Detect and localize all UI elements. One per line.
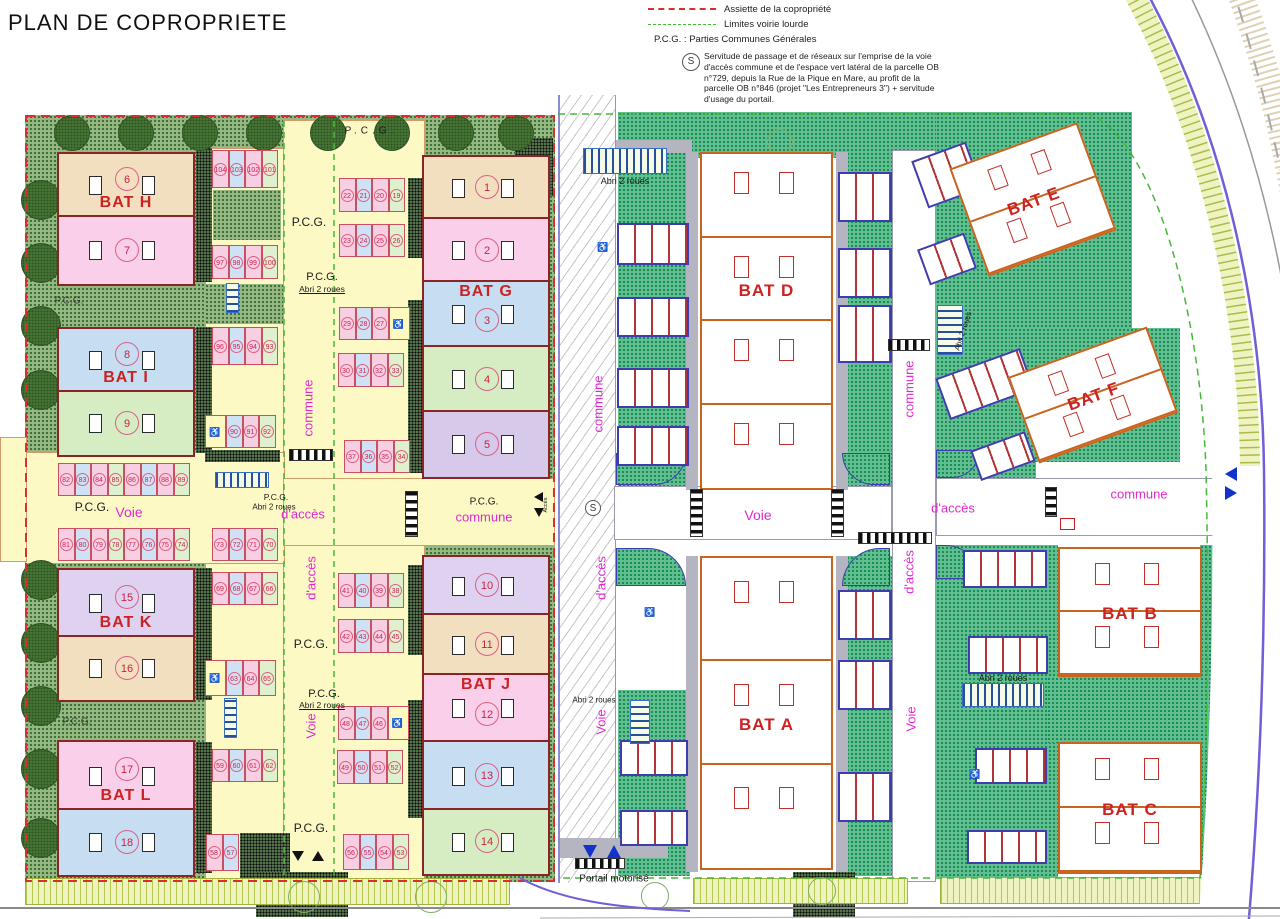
window-icon (89, 833, 102, 852)
stall-number: 84 (93, 473, 106, 486)
road-label: commune (301, 379, 316, 436)
window-icon (734, 581, 749, 603)
parking-stall-53: 53 (393, 834, 410, 870)
parking-stall-44: 44 (371, 619, 388, 653)
window-icon (1030, 149, 1052, 175)
parking-stall-31: 31 (355, 353, 372, 387)
bike-shelter (224, 698, 237, 738)
window-icon (779, 256, 794, 278)
crosswalk (858, 532, 932, 544)
window-icon (779, 172, 794, 194)
parking-stalls (838, 660, 892, 710)
stall-number: 41 (340, 584, 353, 597)
window-icon (734, 684, 749, 706)
tree-icon (21, 370, 61, 410)
parking-cluster: ♿909192 (205, 415, 276, 448)
road-label: Voie (304, 713, 319, 738)
crosswalk (690, 489, 703, 537)
parking-cluster: 41403938 (338, 573, 404, 608)
window-icon (142, 176, 155, 195)
handicap-icon: ♿ (209, 674, 220, 683)
site-plan: PLAN DE COPROPRIETE 10410310210197989910… (0, 0, 1280, 919)
parking-cluster: 96959493 (212, 327, 278, 365)
green-corner (842, 548, 890, 586)
stall-number: 91 (244, 425, 257, 438)
unit-circle: 4 (475, 367, 499, 391)
stall-number: 38 (389, 584, 402, 597)
building-label: BAT K (59, 614, 193, 632)
road-label: Abri 2 roues (299, 284, 345, 294)
unit-2: 2 (424, 219, 548, 282)
window-icon (1144, 563, 1159, 585)
window-icon (1094, 353, 1116, 379)
stall-number: 66 (263, 582, 276, 595)
parking-cluster: 30313233 (338, 353, 404, 387)
arrow-icon (583, 845, 597, 858)
handicap-icon: ♿ (393, 320, 404, 329)
parking-stalls (975, 748, 1047, 784)
unit-circle: 8 (115, 342, 139, 366)
unit-circle: 3 (475, 308, 499, 332)
parking-stall-handicap: ♿ (389, 307, 410, 340)
parking-stall-33: 33 (388, 353, 405, 387)
parking-stall-50: 50 (354, 750, 371, 784)
window-icon (452, 305, 465, 324)
road-label: P.C.G. (292, 215, 326, 229)
building-row (702, 405, 831, 489)
window-icon (1095, 822, 1110, 844)
building-row (1060, 744, 1200, 808)
window-icon (142, 241, 155, 260)
parking-stall-83: 83 (75, 463, 92, 496)
parking-stall-26: 26 (389, 224, 406, 257)
window-icon (779, 684, 794, 706)
parking-stall-91: 91 (243, 415, 260, 448)
stall-number: 85 (109, 473, 122, 486)
stall-number: 56 (345, 846, 358, 859)
stall-number: 80 (76, 538, 89, 551)
stall-number: 78 (109, 538, 122, 551)
unit-16: 16 (59, 637, 193, 700)
stall-number: 102 (247, 163, 260, 176)
parking-stall-handicap: ♿ (388, 706, 409, 740)
parking-cluster: 22212019 (339, 178, 405, 212)
stall-number: 57 (224, 846, 237, 859)
stall-number: 90 (228, 425, 241, 438)
unit-4: 4 (424, 347, 548, 412)
building-label: BAT C (1060, 800, 1200, 820)
parking-stall-56: 56 (343, 834, 360, 870)
tree-icon (182, 115, 218, 151)
parking-stall-86: 86 (124, 463, 141, 496)
parking-stall-25: 25 (372, 224, 389, 257)
road-label: Abri 2 roues (299, 700, 345, 710)
window-icon (89, 414, 102, 433)
common-road-yellow (0, 437, 27, 562)
road-label: Abri 2 roues (601, 176, 650, 186)
embankment-hatch (1235, 0, 1280, 450)
parking-stalls (838, 772, 892, 822)
parking-stalls (620, 810, 688, 846)
stall-number: 22 (341, 189, 354, 202)
parking-stall-24: 24 (356, 224, 373, 257)
window-icon (779, 581, 794, 603)
road-label: d'accès (931, 501, 975, 516)
road-label: d'accès (594, 556, 609, 600)
parking-stall-75: 75 (157, 528, 174, 561)
parking-stall-46: 46 (371, 706, 388, 740)
window-icon (1144, 758, 1159, 780)
parking-stall-102: 102 (245, 150, 262, 188)
parking-cluster: 49505152 (337, 750, 403, 784)
parking-stall-60: 60 (229, 749, 246, 782)
stall-number: 101 (263, 163, 276, 176)
handicap-icon: ♿ (209, 428, 220, 437)
parking-stall-20: 20 (372, 178, 389, 212)
road-label: d'accès (902, 550, 917, 594)
unit-8: 8BAT I (59, 329, 193, 392)
road (936, 478, 1232, 536)
stall-number: 69 (214, 582, 227, 595)
building-bat-l: 17BAT L18 (57, 740, 195, 877)
parking-stalls (617, 426, 689, 466)
window-icon (1095, 626, 1110, 648)
bike-shelter (583, 148, 667, 174)
hedge-row (940, 877, 1220, 904)
green-patch (213, 190, 281, 240)
stall-number: 29 (341, 317, 354, 330)
handicap-icon: ♿ (392, 719, 403, 728)
unit-circle: 6 (115, 167, 139, 191)
unit-circle: 2 (475, 238, 499, 262)
stall-number: 89 (175, 473, 188, 486)
stall-number: 26 (390, 234, 403, 247)
road-label: commune (1110, 487, 1167, 502)
tree-icon (415, 881, 447, 913)
window-icon (142, 659, 155, 678)
parking-cluster: 5857 (206, 834, 239, 871)
parking-stall-62: 62 (262, 749, 279, 782)
building-row (702, 154, 831, 238)
parking-stall-97: 97 (212, 245, 229, 279)
tree-icon (21, 686, 61, 726)
stall-number: 52 (388, 761, 401, 774)
parking-stall-84: 84 (91, 463, 108, 496)
window-icon (89, 659, 102, 678)
central-access-road (558, 95, 616, 883)
landscaping-green (1200, 545, 1236, 875)
handicap-icon: ♿ (969, 770, 980, 779)
parking-stall-35: 35 (377, 440, 394, 473)
window-icon (734, 339, 749, 361)
unit-13: 13 (424, 742, 548, 810)
parking-stall-52: 52 (387, 750, 404, 784)
parking-stall-handicap: ♿ (205, 415, 226, 448)
stall-number: 25 (374, 234, 387, 247)
parking-stall-88: 88 (157, 463, 174, 496)
window-icon (89, 176, 102, 195)
stall-number: 46 (373, 717, 386, 730)
parking-stall-22: 22 (339, 178, 356, 212)
window-icon (452, 636, 465, 655)
window-icon (734, 423, 749, 445)
servitude-marker-icon: S (682, 53, 700, 71)
building-label: BAT D (702, 281, 831, 301)
building-label: BAT B (1060, 604, 1200, 624)
hedge-row (693, 878, 908, 904)
stall-number: 75 (159, 538, 172, 551)
stall-number: 83 (76, 473, 89, 486)
legend-pcg-label: P.C.G. : Parties Communes Générales (654, 34, 816, 45)
window-icon (501, 241, 514, 260)
tree-icon (310, 115, 346, 151)
parking-stall-100: 100 (262, 245, 279, 279)
window-icon (1049, 201, 1071, 227)
unit-7: 7 (59, 217, 193, 284)
parking-stall-47: 47 (355, 706, 372, 740)
parking-stalls (617, 297, 689, 337)
window-icon (734, 172, 749, 194)
stall-number: 45 (389, 630, 402, 643)
window-icon (501, 577, 514, 596)
road-label: Voie (744, 507, 771, 523)
stall-number: 71 (247, 538, 260, 551)
building-label: BAT G (424, 283, 548, 301)
green-patch (205, 284, 283, 324)
legend-limites-label: Limites voirie lourde (724, 19, 808, 30)
unit-circle: 7 (115, 238, 139, 262)
parking-stall-55: 55 (360, 834, 377, 870)
building-bat-k: 15BAT K16 (57, 568, 195, 702)
window-icon (89, 594, 102, 613)
stall-number: 98 (230, 256, 243, 269)
tree-icon (54, 115, 90, 151)
parking-stall-29: 29 (339, 307, 356, 340)
handicap-icon: ♿ (644, 608, 655, 617)
parking-stall-90: 90 (226, 415, 243, 448)
stall-number: 35 (379, 450, 392, 463)
stall-number: 68 (230, 582, 243, 595)
parking-stall-76: 76 (141, 528, 158, 561)
stall-number: 64 (244, 672, 257, 685)
utility-box (1060, 518, 1075, 530)
stall-number: 54 (378, 846, 391, 859)
parking-cluster: 104103102101 (212, 150, 278, 188)
parking-stall-87: 87 (141, 463, 158, 496)
parking-stall-66: 66 (262, 572, 279, 605)
parking-stall-94: 94 (245, 327, 262, 365)
parking-stalls (620, 740, 688, 776)
stall-number: 51 (372, 761, 385, 774)
road-label: commune (455, 510, 512, 525)
road-label: commune (591, 375, 606, 432)
parking-stall-59: 59 (212, 749, 229, 782)
crosswalk (831, 489, 844, 537)
stall-number: 59 (214, 759, 227, 772)
window-icon (1095, 758, 1110, 780)
road-label: d'accès (304, 556, 319, 600)
parking-stall-73: 73 (212, 528, 229, 561)
road-label: Voie (594, 709, 609, 734)
stall-number: 30 (340, 364, 353, 377)
tree-icon (118, 115, 154, 151)
stall-number: 61 (247, 759, 260, 772)
parking-stall-36: 36 (361, 440, 378, 473)
window-icon (89, 767, 102, 786)
hedge (196, 148, 212, 282)
window-icon (452, 577, 465, 596)
unit-18: 18 (59, 810, 193, 875)
unit-circle: 15 (115, 585, 139, 609)
parking-stall-104: 104 (212, 150, 229, 188)
stall-number: 103 (230, 163, 243, 176)
parking-cluster: 69686766 (212, 572, 278, 605)
legend-assiette-label: Assiette de la copropriété (724, 4, 831, 15)
parking-stall-21: 21 (356, 178, 373, 212)
road-label: Voie (115, 504, 142, 520)
unit-11: 11 (424, 615, 548, 675)
tree-icon (21, 749, 61, 789)
unit-circle: 10 (475, 573, 499, 597)
window-icon (501, 636, 514, 655)
parking-stall-72: 72 (229, 528, 246, 561)
stall-number: 81 (60, 538, 73, 551)
unit-14: 14 (424, 810, 548, 874)
parking-stall-27: 27 (372, 307, 389, 340)
arrow-icon (1225, 467, 1237, 481)
landscaping-green (690, 112, 836, 154)
stall-number: 58 (208, 846, 221, 859)
arrow-icon (534, 492, 543, 502)
unit-17: 17BAT L (59, 742, 193, 810)
parking-stalls (617, 223, 689, 265)
window-icon (987, 165, 1009, 191)
stall-number: 53 (394, 846, 407, 859)
tree-icon (498, 115, 534, 151)
building-label: BAT I (59, 369, 193, 387)
limites-line-icon (648, 24, 716, 25)
window-icon (142, 594, 155, 613)
road-label: P.C.G. (294, 637, 328, 651)
stall-number: 36 (362, 450, 375, 463)
parking-stall-78: 78 (108, 528, 125, 561)
building-row (702, 321, 831, 405)
stall-number: 19 (390, 189, 403, 202)
building-bat-j: 101112BAT J1314 (422, 555, 550, 876)
stall-number: 27 (374, 317, 387, 330)
window-icon (452, 241, 465, 260)
unit-5: 5 (424, 412, 548, 477)
stall-number: 82 (60, 473, 73, 486)
stall-number: 87 (142, 473, 155, 486)
building-bat-c: BAT C (1058, 742, 1202, 874)
parking-cluster: 73727170 (212, 528, 278, 561)
bike-shelter (630, 700, 650, 744)
parking-stalls (963, 550, 1047, 588)
parking-stall-43: 43 (355, 619, 372, 653)
building-label: BAT J (424, 676, 548, 694)
parking-stalls (838, 305, 892, 363)
stall-number: 60 (230, 759, 243, 772)
legend: Assiette de la copropriété Limites voiri… (648, 4, 831, 49)
crosswalk (575, 858, 625, 869)
unit-circle: 17 (115, 757, 139, 781)
window-icon (89, 241, 102, 260)
stall-number: 49 (339, 761, 352, 774)
stall-number: 31 (356, 364, 369, 377)
parking-stall-51: 51 (370, 750, 387, 784)
stall-number: 62 (263, 759, 276, 772)
stall-number: 104 (214, 163, 227, 176)
stall-number: 86 (126, 473, 139, 486)
parking-stall-34: 34 (394, 440, 411, 473)
stall-number: 77 (126, 538, 139, 551)
stall-number: 67 (247, 582, 260, 595)
window-icon (1047, 370, 1069, 396)
unit-circle: 11 (475, 632, 499, 656)
road-label: P.C.G. (306, 271, 338, 283)
crosswalk (888, 339, 930, 351)
parking-cluster: 42434445 (338, 619, 404, 653)
parking-stall-98: 98 (229, 245, 246, 279)
parking-stall-handicap: ♿ (205, 660, 226, 696)
road-label: Abri 2 roues (572, 696, 615, 705)
parking-stall-67: 67 (245, 572, 262, 605)
tree-icon (438, 115, 474, 151)
parking-stalls (967, 830, 1047, 864)
parking-stall-49: 49 (337, 750, 354, 784)
window-icon (452, 699, 465, 718)
bike-shelter (215, 472, 269, 488)
building-row (702, 765, 831, 868)
tree-icon (21, 180, 61, 220)
unit-circle: 12 (475, 702, 499, 726)
crosswalk (289, 449, 333, 461)
tree-icon (808, 877, 836, 905)
window-icon (142, 414, 155, 433)
road-centerline (1230, 0, 1280, 460)
parking-stall-54: 54 (376, 834, 393, 870)
parking-cluster: ♿636465 (205, 660, 276, 696)
tree-icon (641, 882, 669, 910)
parking-stall-89: 89 (174, 463, 191, 496)
stall-number: 24 (357, 234, 370, 247)
parking-stall-77: 77 (124, 528, 141, 561)
stall-number: 33 (389, 364, 402, 377)
window-icon (501, 370, 514, 389)
parking-cluster: 292827♿ (339, 307, 410, 340)
parking-stall-32: 32 (371, 353, 388, 387)
parking-stall-95: 95 (229, 327, 246, 365)
parking-stalls (968, 636, 1048, 674)
parking-stall-80: 80 (75, 528, 92, 561)
unit-10: 10 (424, 557, 548, 615)
parking-stalls (838, 590, 892, 640)
parking-stall-48: 48 (338, 706, 355, 740)
hedge (408, 178, 423, 258)
road-label: Voie (904, 706, 919, 731)
road-label: commune (902, 360, 917, 417)
parking-stall-101: 101 (262, 150, 279, 188)
stall-number: 74 (175, 538, 188, 551)
parking-stall-82: 82 (58, 463, 75, 496)
building-row: BAT D (702, 238, 831, 322)
building-row (702, 558, 831, 661)
hedge (205, 450, 280, 462)
parking-stalls (617, 368, 689, 408)
stall-number: 48 (340, 717, 353, 730)
parking-stalls (838, 248, 892, 298)
